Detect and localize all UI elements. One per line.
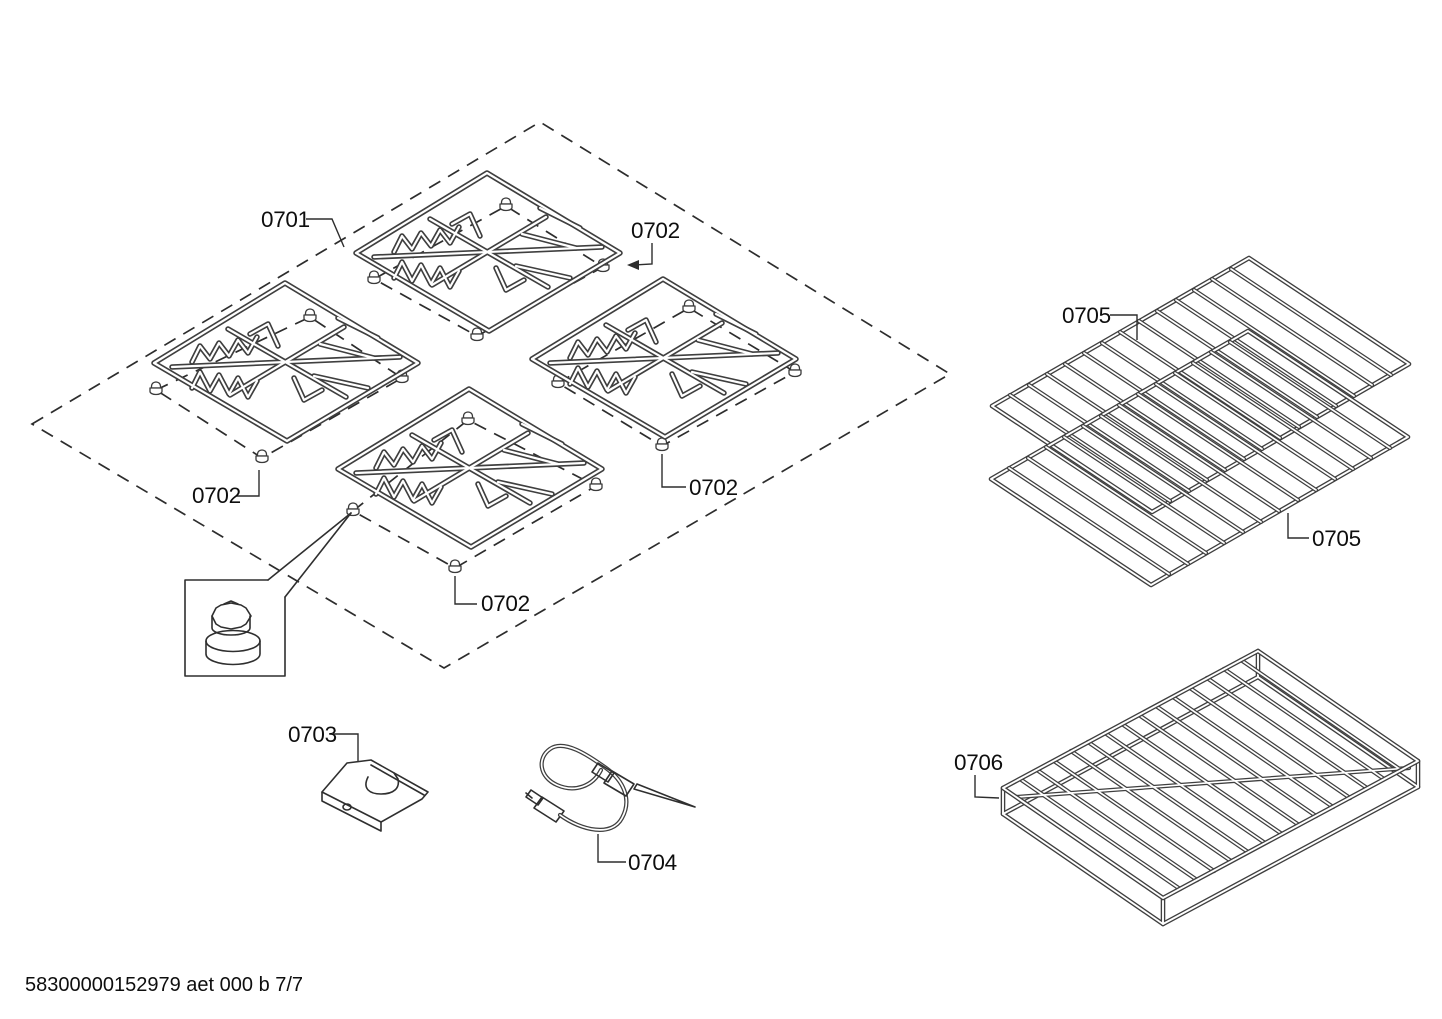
part-label-0704: 0704 (628, 850, 677, 875)
part-label-0702-bottom: 0702 (481, 591, 530, 616)
document-code: 58300000152979 aet 000 b 7/7 (25, 974, 303, 996)
grate-foot-nut (304, 309, 316, 322)
grate-foot-nut (789, 364, 801, 377)
burner-base-icon (206, 601, 260, 665)
callout-pointer (285, 513, 351, 597)
part-label-0701: 0701 (261, 207, 310, 232)
temperature-probe (526, 746, 695, 830)
grate-foot-nut (449, 560, 461, 573)
part-label-0702-top-right: 0702 (631, 218, 680, 243)
parts-diagram-canvas: 0701 0702 0702 0702 0702 0703 0704 0705 … (0, 0, 1442, 1019)
part-label-0705-lower: 0705 (1312, 526, 1361, 551)
grate-foot-nut (462, 412, 474, 425)
grate-foot-nut (500, 198, 512, 211)
burner-grate-right (532, 279, 796, 437)
leader-0702-bottom (455, 576, 477, 604)
part-label-0706: 0706 (954, 750, 1003, 775)
grate-foot-nut (590, 478, 602, 491)
part-label-0705-upper: 0705 (1062, 303, 1111, 328)
pull-out-rack (1003, 651, 1418, 924)
burner-base-callout (185, 513, 351, 676)
leader-arrowhead (627, 260, 639, 270)
grate-foot-nut (256, 450, 268, 463)
part-label-0702-left: 0702 (192, 483, 241, 508)
part-label-0702-center-right: 0702 (689, 475, 738, 500)
grate-foot-nut (683, 300, 695, 313)
grate-foot-nut (150, 382, 162, 395)
parts-diagram-page: 0701 0702 0702 0702 0702 0703 0704 0705 … (0, 0, 1442, 1019)
grate-foot-nut (471, 328, 483, 341)
part-label-0703: 0703 (288, 722, 337, 747)
leader-0704 (598, 834, 626, 862)
leader-0706 (975, 775, 999, 798)
grate-foot-nut (347, 503, 359, 516)
cooktop-outline (32, 122, 950, 668)
leader-0705-lower (1288, 513, 1309, 538)
callout-pointer (268, 513, 351, 580)
burner-grate-top (356, 173, 620, 331)
leader-0702-center-right (662, 454, 686, 487)
grate-foot-nut (368, 271, 380, 284)
mounting-bracket (322, 760, 428, 831)
grate-foot-nut (656, 438, 668, 451)
